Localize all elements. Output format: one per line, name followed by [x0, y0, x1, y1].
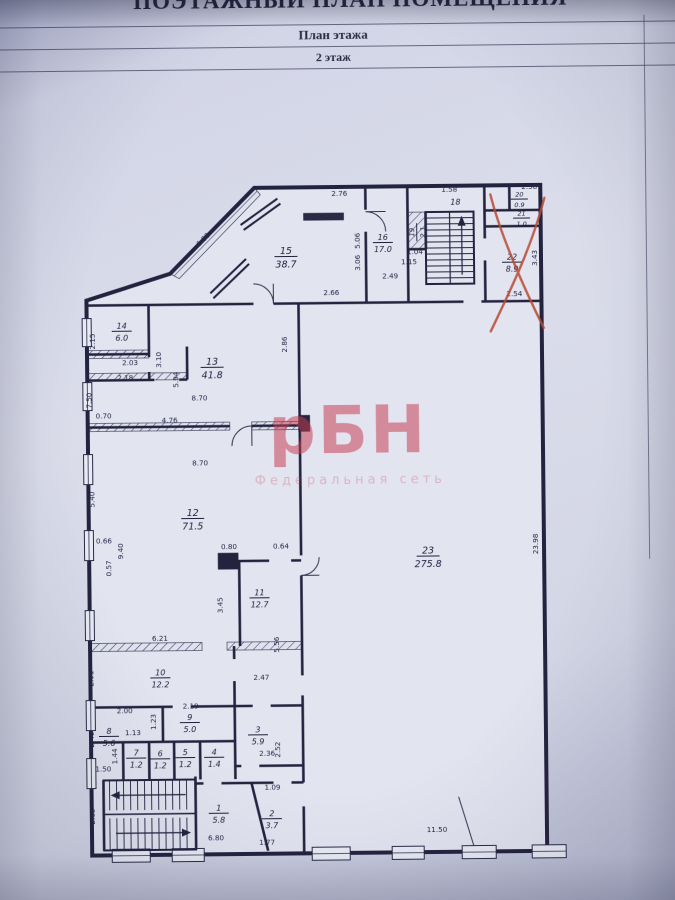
dimension-label: 0.64 [273, 542, 290, 551]
svg-text:1.4: 1.4 [208, 760, 221, 769]
document-sheet: ПОЭТАЖНЫЙ ПЛАН ПОМЕЩЕНИЯ План этажа 2 эт… [0, 0, 675, 900]
dimension-label: 3.43 [530, 250, 539, 266]
dimension-label: 3.10 [154, 351, 163, 368]
dimension-label: 1.04 [407, 247, 424, 256]
svg-text:5.6: 5.6 [103, 739, 116, 748]
dimension-label: 7.50 [84, 392, 93, 409]
svg-text:16: 16 [378, 233, 388, 242]
dimension-label: 2.18 [117, 373, 134, 382]
svg-text:5.9: 5.9 [252, 737, 265, 746]
svg-text:0.9: 0.9 [514, 201, 524, 209]
svg-text:14: 14 [117, 322, 127, 331]
svg-text:12: 12 [187, 508, 199, 519]
dimension-label: 2.58 [521, 182, 538, 191]
watermark-subtext: Федеральная сеть [240, 472, 460, 489]
svg-text:12.7: 12.7 [251, 600, 270, 609]
dimension-label: 2.52 [273, 742, 282, 758]
dimension-label: 2.66 [323, 288, 340, 297]
watermark-logo: рБН [257, 397, 438, 465]
svg-text:13: 13 [206, 357, 218, 368]
dimension-label: 2.86 [280, 336, 289, 353]
svg-text:275.8: 275.8 [415, 559, 442, 570]
dimension-label: 2.49 [382, 271, 399, 280]
dimension-label: 2.76 [331, 189, 348, 198]
dimension-label: 3.06 [353, 254, 362, 271]
dimension-label: 6.80 [208, 833, 225, 842]
svg-text:20: 20 [515, 191, 523, 199]
room-label-18: 18 [450, 198, 460, 207]
svg-text:17.0: 17.0 [374, 245, 392, 254]
svg-text:4: 4 [212, 748, 217, 757]
dimension-label: 5.94 [171, 371, 180, 388]
dimension-label: 2.03 [122, 358, 138, 367]
dimension-label: 8.70 [192, 458, 209, 467]
dimension-label: 2.63 [88, 809, 97, 825]
svg-text:3.7: 3.7 [266, 821, 280, 830]
dimension-label: 2.00 [117, 706, 134, 715]
dimension-label: 2.01 [86, 671, 95, 687]
dimension-label: 1.58 [441, 185, 458, 194]
dimension-label: 9.40 [116, 543, 125, 560]
photographed-floor-plan-document: ПОЭТАЖНЫЙ ПЛАН ПОМЕЩЕНИЯ План этажа 2 эт… [0, 0, 675, 900]
dimension-label: 1.50 [95, 764, 112, 773]
svg-text:1.2: 1.2 [130, 761, 143, 770]
dimension-label: 2.15 [88, 334, 97, 350]
svg-text:41.8: 41.8 [202, 370, 223, 381]
dimension-label: 2.47 [253, 673, 269, 682]
apartment-outline-fill [85, 185, 547, 856]
svg-text:6.0: 6.0 [115, 334, 128, 343]
dimension-label: 1.15 [401, 257, 417, 266]
dimension-label: 1.23 [149, 714, 158, 730]
dimension-label: 3.45 [216, 597, 225, 613]
svg-text:10: 10 [155, 668, 165, 677]
svg-text:1.2: 1.2 [179, 760, 192, 769]
dimension-label: 8.70 [191, 393, 208, 402]
dimension-label: 11.50 [427, 825, 448, 834]
svg-text:5.0: 5.0 [184, 725, 197, 734]
svg-text:38.7: 38.7 [275, 259, 296, 270]
svg-text:3: 3 [255, 725, 260, 734]
dimension-label: 23.98 [531, 533, 540, 554]
dimension-label: 1.77 [259, 838, 275, 847]
svg-text:6: 6 [158, 749, 163, 758]
svg-text:15: 15 [280, 246, 292, 257]
svg-text:1: 1 [216, 804, 221, 813]
svg-text:9: 9 [187, 713, 192, 722]
svg-text:18: 18 [450, 198, 460, 207]
dimension-label: 5.56 [272, 636, 281, 653]
svg-text:8: 8 [106, 727, 111, 736]
svg-text:23: 23 [422, 545, 434, 556]
dimension-label: 0.57 [104, 560, 113, 576]
dimension-label: 1.44 [110, 748, 119, 765]
svg-text:19: 19 [408, 227, 416, 237]
svg-text:21: 21 [517, 210, 525, 218]
svg-text:2: 2 [269, 809, 274, 818]
dimension-label: 0.80 [221, 542, 238, 551]
svg-text:2.1: 2.1 [419, 226, 427, 237]
dimension-label: 5.06 [353, 232, 362, 249]
dimension-label: 0.70 [96, 411, 113, 420]
svg-text:71.5: 71.5 [182, 521, 203, 532]
svg-text:5: 5 [183, 748, 188, 757]
dimension-label: 0.66 [96, 536, 113, 545]
dimension-label: 5.40 [87, 491, 96, 508]
dimension-label: 2.40 [87, 731, 96, 748]
svg-text:12.2: 12.2 [151, 680, 169, 689]
dimension-label: 1.09 [264, 783, 281, 792]
dimension-label: 6.21 [152, 634, 168, 643]
svg-text:1.2: 1.2 [154, 761, 167, 770]
dimension-label: 4.76 [162, 416, 179, 425]
svg-text:5.8: 5.8 [212, 816, 225, 825]
dimension-label: 1.13 [125, 728, 141, 737]
svg-text:11: 11 [254, 588, 264, 597]
dimension-label: 2.19 [183, 701, 200, 710]
svg-text:1.0: 1.0 [516, 220, 526, 228]
